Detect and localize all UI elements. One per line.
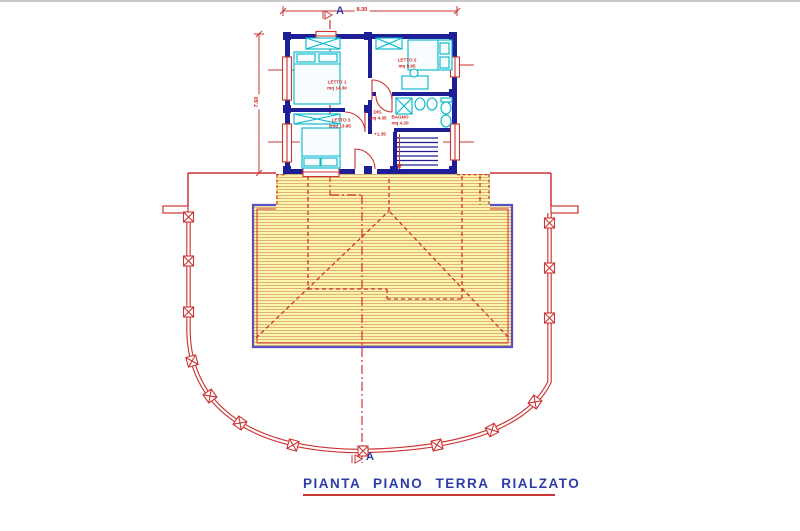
furniture: [294, 38, 452, 168]
room-label-dis: DIS.mq 4.35: [369, 110, 386, 121]
drawing-title: PIANTA PIANO TERRA RIALZATO: [303, 476, 555, 496]
section-arrow-top: [323, 11, 332, 19]
section-label-top: A: [336, 5, 344, 17]
roof-plan: [253, 174, 512, 347]
drawing-canvas: LETTO 1mq 14.30 LETTO 2mq 9.95 LETTO 3mq…: [0, 0, 800, 531]
room-label-bagno: BAGNOmq 4.20: [391, 115, 408, 126]
stairs: [397, 134, 438, 170]
plan-linework: [0, 2, 800, 531]
room-label-letto3: LETTO 3mq 13.95: [331, 118, 351, 129]
room-label-letto2: LETTO 2mq 9.95: [398, 58, 417, 69]
dimension-left-label: 7.60: [254, 95, 260, 110]
section-label-bottom: A: [366, 451, 374, 463]
dimension-top-label: 8.30: [355, 7, 370, 13]
room-label-letto1: LETTO 1mq 14.30: [327, 80, 347, 91]
level-marker: +1.35: [374, 131, 386, 137]
